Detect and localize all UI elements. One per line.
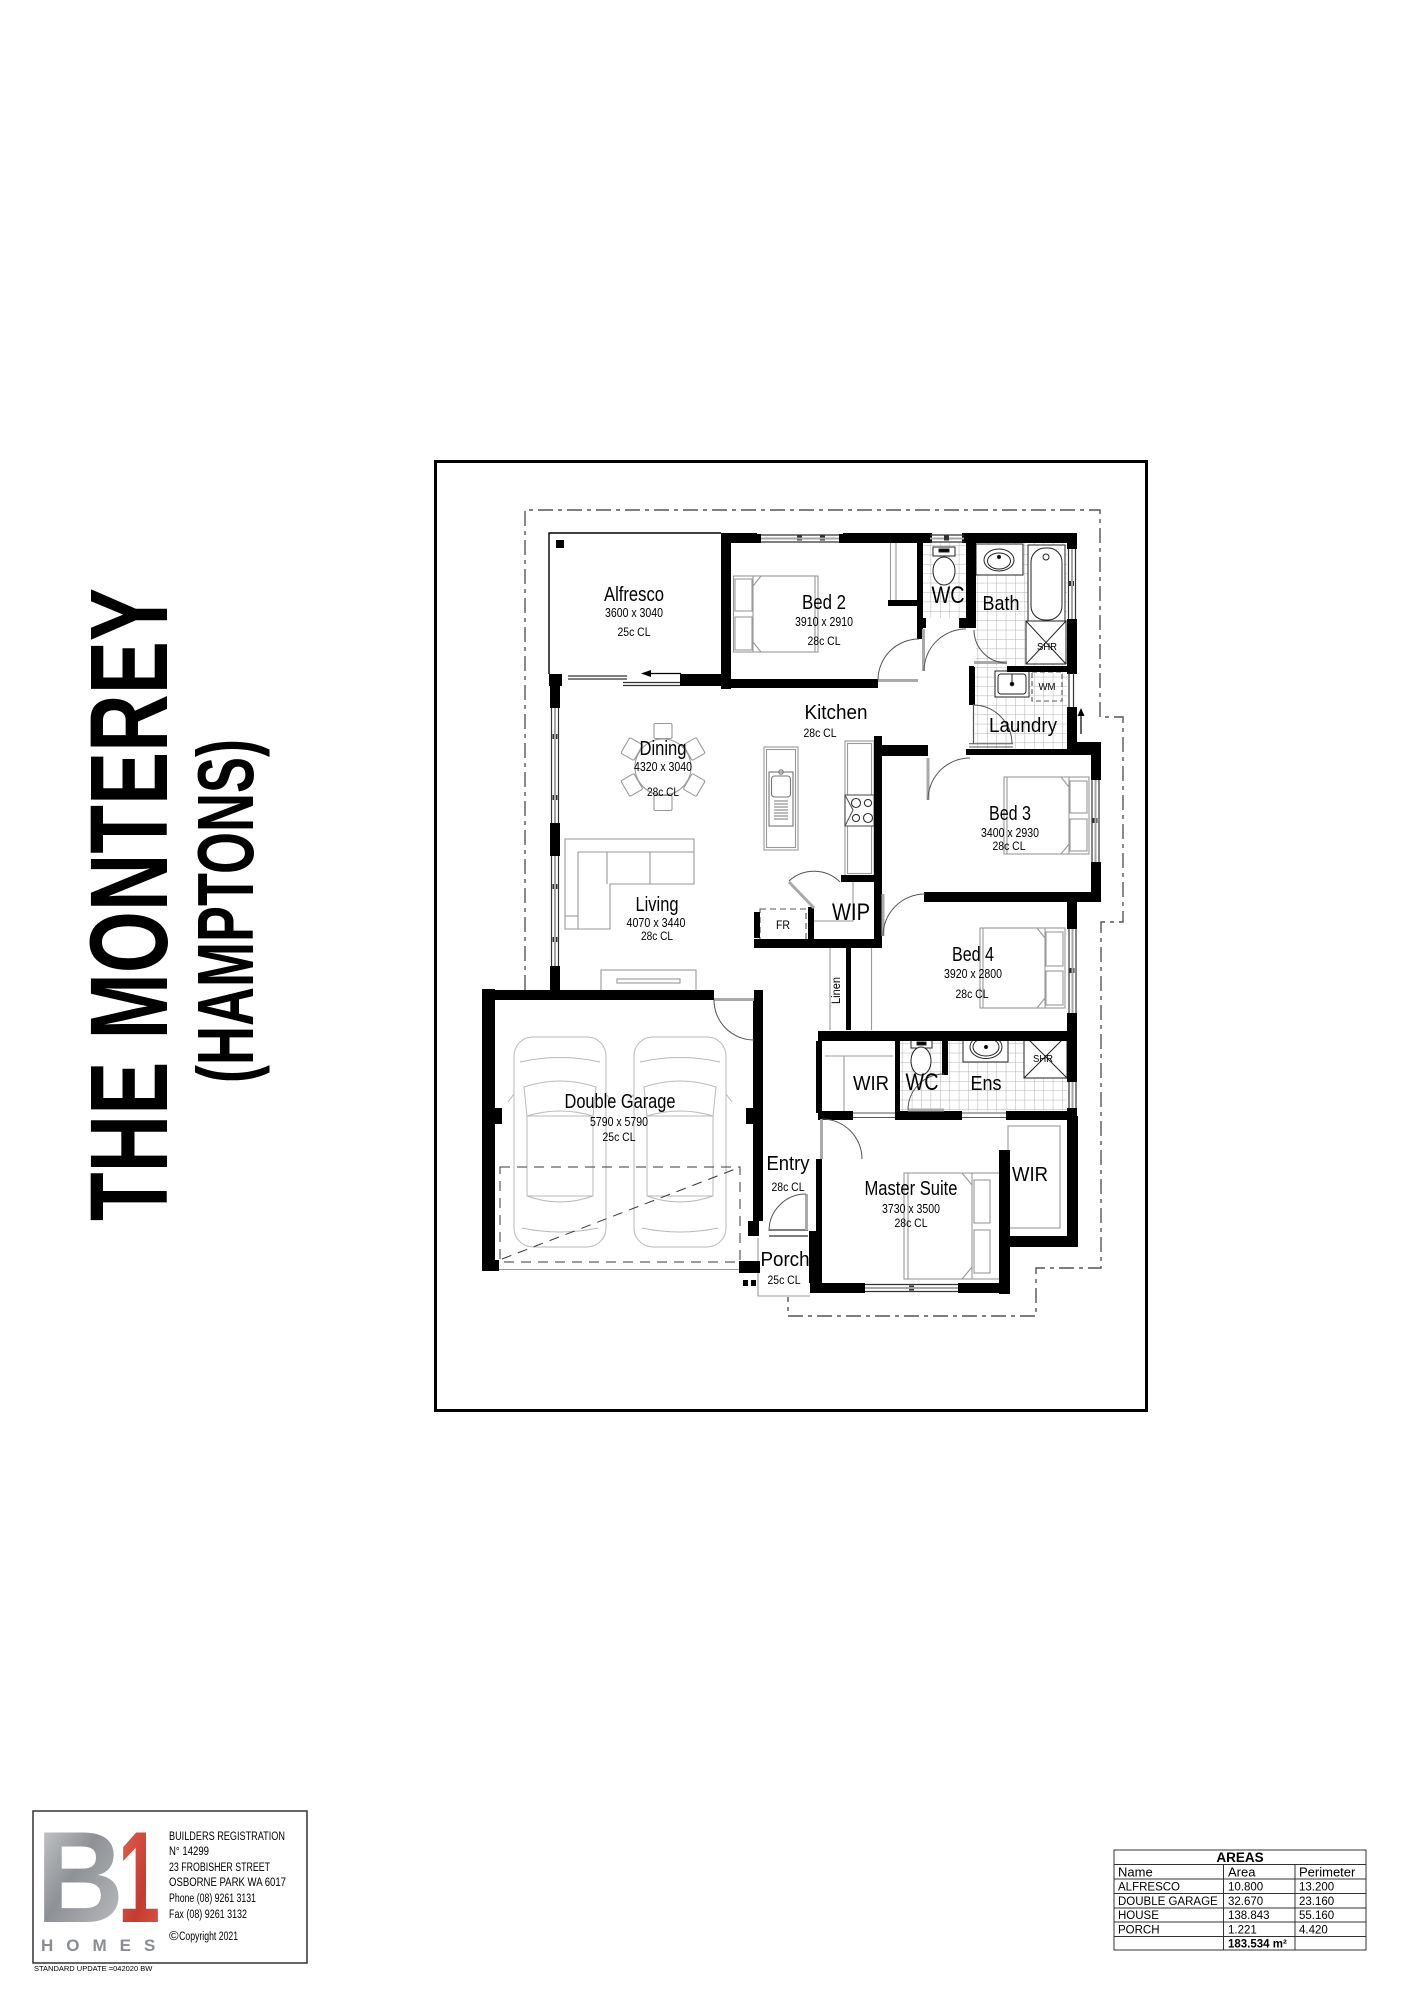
svg-text:28c CL: 28c CL [993, 841, 1027, 853]
svg-text:Linen: Linen [831, 977, 843, 1004]
svg-text:13.200: 13.200 [1299, 1882, 1334, 1894]
svg-text:AREAS: AREAS [1216, 1850, 1263, 1865]
svg-text:3600 x 3040: 3600 x 3040 [605, 605, 663, 620]
svg-text:23 FROBISHER STREET: 23 FROBISHER STREET [169, 1862, 270, 1874]
svg-text:N° 14299: N° 14299 [169, 1846, 209, 1858]
svg-text:Bed 2: Bed 2 [802, 592, 846, 614]
svg-text:WM: WM [1039, 682, 1056, 693]
svg-text:Kitchen: Kitchen [805, 702, 868, 724]
svg-text:3910 x 2910: 3910 x 2910 [795, 614, 853, 629]
svg-text:SHR: SHR [1037, 642, 1057, 653]
svg-text:183.534 m²: 183.534 m² [1228, 1939, 1287, 1951]
svg-text:Bath: Bath [983, 593, 1020, 615]
svg-text:Entry: Entry [767, 1153, 810, 1175]
svg-text:3730 x 3500: 3730 x 3500 [882, 1201, 940, 1216]
svg-text:SHR: SHR [1033, 1054, 1053, 1065]
svg-text:Living: Living [636, 894, 679, 916]
svg-text:28c CL: 28c CL [772, 1182, 806, 1194]
svg-text:WIR: WIR [1012, 1164, 1048, 1186]
svg-text:23.160: 23.160 [1299, 1896, 1334, 1908]
svg-text:1: 1 [118, 1804, 160, 1950]
svg-text:28c CL: 28c CL [895, 1218, 929, 1230]
svg-text:28c CL: 28c CL [641, 931, 674, 943]
svg-text:WC: WC [906, 1069, 939, 1096]
svg-text:55.160: 55.160 [1299, 1910, 1334, 1922]
svg-text:32.670: 32.670 [1228, 1896, 1263, 1908]
svg-text:10.800: 10.800 [1228, 1882, 1263, 1894]
svg-text:FR: FR [776, 920, 790, 932]
svg-text:25c CL: 25c CL [603, 1132, 637, 1144]
svg-text:3920 x 2800: 3920 x 2800 [944, 966, 1002, 981]
svg-text:Name: Name [1118, 1865, 1153, 1880]
svg-text:4070 x 3440: 4070 x 3440 [627, 915, 686, 930]
svg-text:28c CL: 28c CL [956, 989, 990, 1001]
svg-text:DOUBLE GARAGE: DOUBLE GARAGE [1118, 1896, 1218, 1908]
svg-text:Phone (08) 9261 3131: Phone (08) 9261 3131 [169, 1893, 256, 1905]
svg-text:HOUSE: HOUSE [1118, 1910, 1159, 1922]
svg-text:Laundry: Laundry [989, 715, 1057, 737]
svg-text:Fax (08) 9261 3132: Fax (08) 9261 3132 [169, 1909, 247, 1921]
svg-text:Area: Area [1228, 1865, 1256, 1880]
svg-text:4320 x 3040: 4320 x 3040 [634, 759, 692, 774]
svg-text:ALFRESCO: ALFRESCO [1118, 1882, 1180, 1894]
svg-text:WC: WC [932, 582, 965, 609]
svg-text:Ens: Ens [971, 1073, 1002, 1095]
svg-text:Dining: Dining [640, 738, 687, 760]
svg-text:28c CL: 28c CL [808, 636, 842, 648]
svg-text:3400 x 2930: 3400 x 2930 [981, 825, 1039, 840]
svg-text:Double Garage: Double Garage [565, 1091, 676, 1113]
svg-text:Master Suite: Master Suite [865, 1178, 958, 1200]
svg-text:1.221: 1.221 [1228, 1925, 1257, 1937]
svg-text:Bed 4: Bed 4 [952, 944, 994, 966]
svg-text:138.843: 138.843 [1228, 1910, 1270, 1922]
svg-text:BUILDERS REGISTRATION: BUILDERS REGISTRATION [169, 1831, 285, 1843]
svg-text:PORCH: PORCH [1118, 1925, 1160, 1937]
svg-text:THE MONTEREY: THE MONTEREY [68, 588, 191, 1221]
svg-text:(HAMPTONS): (HAMPTONS) [181, 739, 270, 1083]
svg-text:28c CL: 28c CL [804, 728, 838, 740]
svg-text:HOMES: HOMES [41, 1936, 168, 1955]
svg-text:OSBORNE PARK WA 6017: OSBORNE PARK WA 6017 [169, 1877, 286, 1889]
svg-text:28c CL: 28c CL [647, 787, 680, 799]
svg-text:5790 x 5790: 5790 x 5790 [590, 1114, 648, 1129]
svg-text:WIR: WIR [853, 1073, 889, 1095]
svg-text:©Copyright 2021: ©Copyright 2021 [169, 1928, 238, 1943]
svg-text:25c CL: 25c CL [768, 1275, 802, 1287]
svg-text:4.420: 4.420 [1299, 1925, 1328, 1937]
svg-text:WIP: WIP [832, 899, 870, 926]
svg-text:25c CL: 25c CL [618, 627, 652, 639]
svg-text:B: B [36, 1804, 124, 1950]
svg-text:STANDARD UPDATE =042020 BW: STANDARD UPDATE =042020 BW [34, 1964, 153, 1973]
svg-text:Porch: Porch [761, 1249, 810, 1271]
svg-text:Alfresco: Alfresco [604, 584, 664, 606]
svg-text:Perimeter: Perimeter [1299, 1865, 1356, 1880]
svg-text:Bed 3: Bed 3 [989, 803, 1031, 825]
